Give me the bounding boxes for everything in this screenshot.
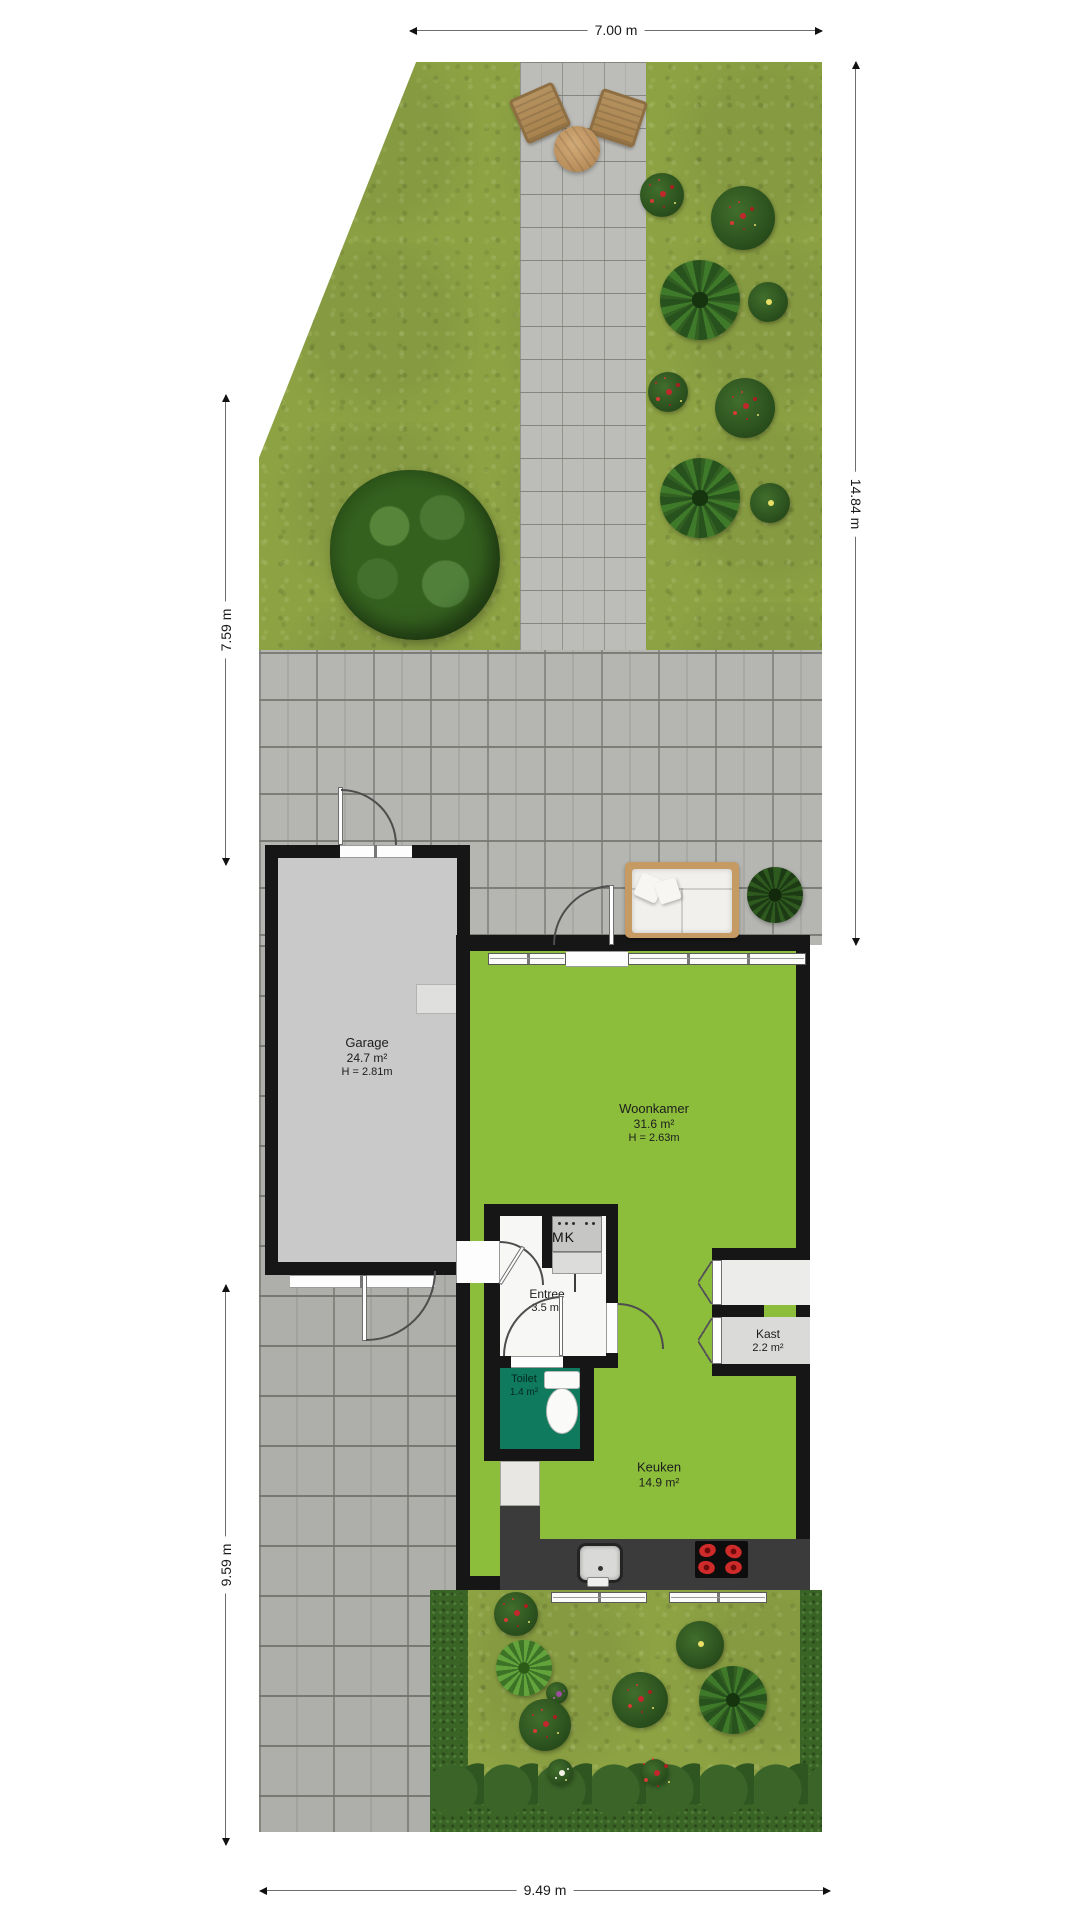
kast-wall-top xyxy=(712,1248,810,1260)
garage-label: Garage 24.7 m² H = 2.81m xyxy=(341,1035,392,1079)
hedge-bottom-bushes xyxy=(430,1748,822,1820)
kast-room-upper xyxy=(722,1260,810,1305)
toilet-label: Toilet 1.4 m² xyxy=(510,1373,538,1399)
mk-divider xyxy=(574,1274,576,1292)
kast-wall-stub xyxy=(712,1305,764,1317)
toilet-wall-bottom xyxy=(484,1449,594,1461)
room-area: 2.2 m² xyxy=(752,1342,783,1355)
kast-bifold-mark-lower xyxy=(698,1318,712,1363)
toilet-door-leaf xyxy=(559,1296,563,1356)
room-area: 31.6 m² xyxy=(619,1117,689,1131)
dimension-bottom: 9.49 m xyxy=(260,1890,830,1891)
kast-label: Kast 2.2 m² xyxy=(752,1327,783,1355)
kitchen-stove xyxy=(695,1541,748,1578)
flower-bush xyxy=(748,282,788,322)
flower-bush xyxy=(519,1699,571,1751)
garage-workbench xyxy=(416,984,457,1014)
entree-wall-left xyxy=(484,1204,500,1368)
mk-wall-stub xyxy=(542,1212,552,1268)
kast-door-lower xyxy=(712,1317,722,1364)
room-height: H = 2.63m xyxy=(619,1132,689,1145)
dimension-left-upper-label: 7.59 m xyxy=(217,602,235,659)
palm-plant xyxy=(496,1640,552,1696)
palm-plant xyxy=(660,260,740,340)
outdoor-sofa xyxy=(625,862,739,938)
garage-garden-door xyxy=(340,845,412,858)
toilet-wall-right xyxy=(580,1368,594,1461)
room-name: Garage xyxy=(341,1035,392,1051)
livingroom-door-arc xyxy=(618,1303,664,1349)
toilet-bowl xyxy=(546,1388,578,1434)
dimension-bottom-label: 9.49 m xyxy=(517,1881,574,1899)
dimension-right: 14.84 m xyxy=(855,62,856,945)
toilet-tank xyxy=(544,1371,580,1389)
flower-bush xyxy=(648,372,688,412)
dimension-top-label: 7.00 m xyxy=(588,21,645,39)
terrace-plant xyxy=(747,867,803,923)
flower-bush xyxy=(676,1621,724,1669)
livingroom-door-opening xyxy=(606,1303,618,1353)
house: Woonkamer 31.6 m² H = 2.63m MK Entree 3.… xyxy=(456,935,810,1590)
flower-bush xyxy=(715,378,775,438)
room-name: Woonkamer xyxy=(619,1101,689,1117)
kitchen-counter xyxy=(500,1539,810,1590)
back-door-leaf xyxy=(609,885,614,945)
front-window-right xyxy=(628,953,806,965)
flower-bush xyxy=(642,1759,668,1785)
rear-window-left xyxy=(551,1592,647,1603)
tree xyxy=(330,470,500,640)
front-window-left xyxy=(488,953,566,965)
kitchen-faucet xyxy=(587,1577,609,1587)
kast-bifold-mark-upper xyxy=(698,1261,712,1304)
entree-wall-top xyxy=(497,1204,618,1216)
palm-plant xyxy=(699,1666,767,1734)
back-door-opening xyxy=(566,951,628,967)
dimension-left-lower-label: 9.59 m xyxy=(217,1537,235,1594)
dimension-left-lower: 9.59 m xyxy=(225,1285,226,1845)
room-area: 1.4 m² xyxy=(510,1387,538,1399)
room-name: Keuken xyxy=(637,1460,681,1476)
kitchen-counter-corner xyxy=(500,1506,540,1539)
front-lawn-right xyxy=(646,62,822,650)
dimension-left-upper: 7.59 m xyxy=(225,395,226,865)
room-area: 14.9 m² xyxy=(637,1476,681,1490)
keuken-label: Keuken 14.9 m² xyxy=(637,1460,681,1491)
front-door-opening xyxy=(456,1241,500,1283)
room-height: H = 2.81m xyxy=(341,1066,392,1079)
dimension-top: 7.00 m xyxy=(410,30,822,31)
kast-wall-bottom xyxy=(712,1364,810,1376)
rear-window-right xyxy=(669,1592,767,1603)
floorplan-canvas: Garage 24.7 m² H = 2.81m Woonkamer 31.6 … xyxy=(0,0,1080,1920)
garden-table xyxy=(554,126,600,172)
flower-bush xyxy=(750,483,790,523)
flower-bush xyxy=(612,1672,668,1728)
kast-door-upper xyxy=(712,1260,722,1305)
room-name: Kast xyxy=(752,1327,783,1342)
woonkamer-label: Woonkamer 31.6 m² H = 2.63m xyxy=(619,1101,689,1145)
toilet-wall-left xyxy=(484,1368,500,1461)
flower-bush xyxy=(494,1592,538,1636)
mk-label: MK xyxy=(552,1229,575,1245)
toilet-room: Toilet 1.4 m² xyxy=(500,1368,580,1449)
toilet-door-opening xyxy=(511,1356,563,1368)
flower-bush xyxy=(547,1759,573,1785)
mk-cabinet-lower xyxy=(552,1252,602,1274)
palm-plant xyxy=(660,458,740,538)
garage-room: Garage 24.7 m² H = 2.81m xyxy=(265,845,470,1275)
kitchen-appliance xyxy=(500,1461,540,1506)
room-name: Toilet xyxy=(510,1373,538,1387)
flower-bush xyxy=(711,186,775,250)
dimension-right-label: 14.84 m xyxy=(847,471,865,536)
flower-bush xyxy=(640,173,684,217)
room-area: 24.7 m² xyxy=(341,1051,392,1065)
